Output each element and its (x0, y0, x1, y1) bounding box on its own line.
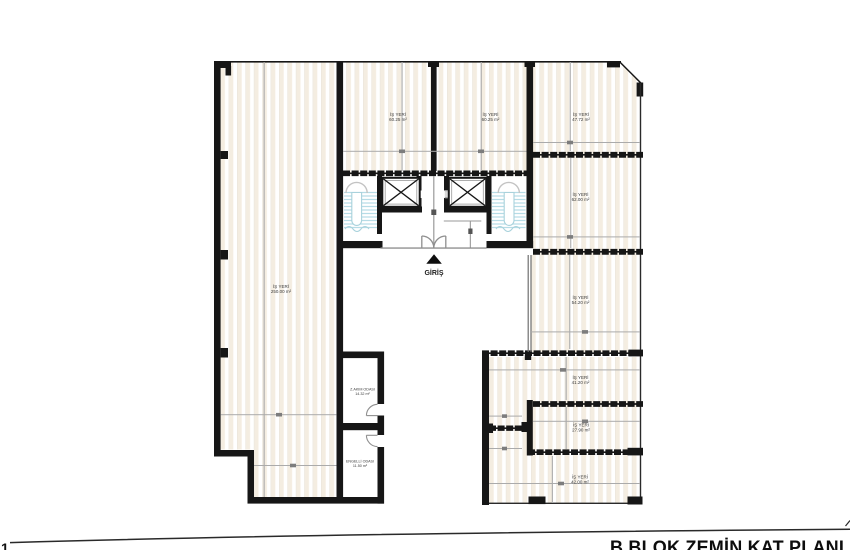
svg-text:İŞ YERİ: İŞ YERİ (273, 283, 289, 289)
svg-text:ENGELLİ ODASI: ENGELLİ ODASI (346, 459, 374, 464)
svg-text:62.00 m²: 62.00 m² (572, 197, 590, 202)
svg-text:27.90 m²: 27.90 m² (572, 428, 590, 433)
svg-text:B BLOK ZEMİN KAT PLANI: B BLOK ZEMİN KAT PLANI (610, 538, 844, 550)
svg-text:42.00 m²: 42.00 m² (571, 480, 589, 485)
svg-text:14.32 m²: 14.32 m² (355, 392, 370, 396)
svg-text:İŞ YERİ: İŞ YERİ (483, 111, 499, 117)
svg-text:İŞ YERİ: İŞ YERİ (572, 474, 588, 480)
svg-text:1: 1 (1, 540, 9, 550)
svg-text:İŞ YERİ: İŞ YERİ (573, 111, 589, 117)
svg-text:Z.AKIM ODASI: Z.AKIM ODASI (350, 388, 375, 392)
svg-text:İŞ YERİ: İŞ YERİ (573, 374, 589, 380)
svg-text:250.00 m²: 250.00 m² (271, 289, 292, 294)
svg-text:47.72 m²: 47.72 m² (572, 117, 590, 122)
svg-text:41.20 m²: 41.20 m² (572, 380, 590, 385)
svg-text:İŞ YERİ: İŞ YERİ (390, 111, 406, 117)
svg-text:İŞ YERİ: İŞ YERİ (573, 294, 589, 300)
svg-text:60.25 m²: 60.25 m² (482, 117, 500, 122)
svg-text:İŞ YERİ: İŞ YERİ (573, 422, 589, 428)
svg-text:54.20 m²: 54.20 m² (572, 300, 590, 305)
svg-text:İŞ YERİ: İŞ YERİ (573, 191, 589, 197)
svg-text:GİRİŞ: GİRİŞ (424, 269, 443, 277)
svg-text:60.25 m²: 60.25 m² (389, 117, 407, 122)
svg-text:11.50 m²: 11.50 m² (353, 464, 368, 468)
